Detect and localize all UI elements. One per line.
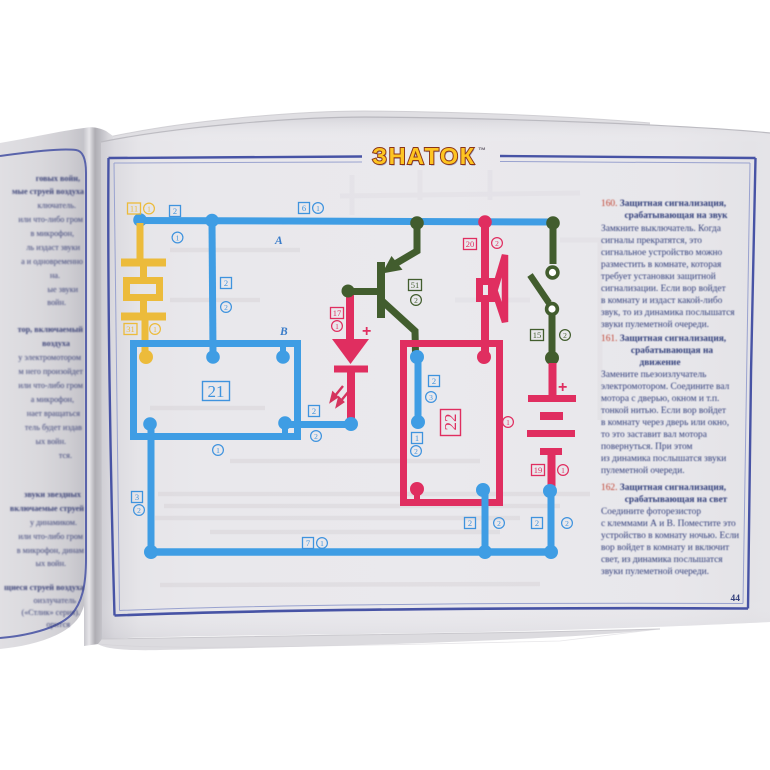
- svg-text:51: 51: [411, 280, 420, 290]
- svg-text:7: 7: [306, 538, 310, 548]
- svg-text:1: 1: [316, 204, 320, 213]
- svg-text:2: 2: [565, 519, 569, 528]
- svg-text:из динамика послышатся звуки: из динамика послышатся звуки: [601, 454, 726, 464]
- svg-text:20: 20: [466, 239, 475, 249]
- svg-text:2: 2: [312, 406, 316, 416]
- svg-text:160. Защитная сигнализация,: 160. Защитная сигнализация,: [601, 199, 726, 209]
- svg-text:1: 1: [506, 418, 510, 427]
- svg-text:на.: на.: [50, 271, 60, 280]
- svg-text:2: 2: [224, 303, 228, 312]
- svg-text:щиеся струей воздуха: щиеся струей воздуха: [4, 583, 84, 592]
- svg-text:у электромотором: у электромотором: [18, 353, 81, 362]
- svg-text:мотора с дверью, окном и т.п.: мотора с дверью, окном и т.п.: [601, 394, 719, 404]
- svg-text:2: 2: [414, 296, 418, 305]
- svg-text:требует установки защитной: требует установки защитной: [601, 271, 716, 282]
- svg-text:или что-либо гром: или что-либо гром: [18, 215, 83, 224]
- svg-text:или что-либо гром: или что-либо гром: [18, 381, 83, 390]
- svg-text:срабатывающая на: срабатывающая на: [631, 345, 713, 356]
- svg-text:воздуха: воздуха: [42, 339, 70, 348]
- svg-text:ЗНАТОК: ЗНАТОК: [372, 143, 476, 169]
- svg-text:или что-либо гром: или что-либо гром: [18, 532, 83, 541]
- svg-text:21: 21: [208, 382, 225, 401]
- svg-text:11: 11: [130, 204, 138, 214]
- svg-text:свет, из динамика послышатся: свет, из динамика послышатся: [601, 555, 723, 565]
- svg-text:ых войн.: ых войн.: [36, 437, 66, 446]
- svg-text:2: 2: [224, 278, 228, 288]
- svg-text:в комнату через дверь или окно: в комнату через дверь или окно,: [601, 418, 729, 428]
- svg-text:электромотором. Соедините вал: электромотором. Соедините вал: [601, 382, 730, 392]
- svg-text:1: 1: [153, 325, 157, 334]
- svg-text:1: 1: [320, 539, 324, 548]
- svg-text:сигнальное устройство можно: сигнальное устройство можно: [601, 247, 723, 258]
- svg-text:B: B: [279, 326, 288, 338]
- svg-text:мые струей воздуха: мые струей воздуха: [12, 187, 84, 196]
- svg-text:звук, то из динамика послышатс: звук, то из динамика послышатся: [601, 308, 735, 318]
- svg-text:войн.: войн.: [47, 298, 66, 307]
- svg-text:тель будет издав: тель будет издав: [25, 423, 82, 432]
- svg-text:17: 17: [333, 308, 342, 318]
- svg-text:1: 1: [216, 446, 220, 455]
- svg-text:тонкой нитью. Если вор войдет: тонкой нитью. Если вор войдет: [601, 405, 726, 416]
- svg-text:оизлучатель: оизлучатель: [34, 596, 77, 605]
- svg-text:то это заставит вал мотора: то это заставит вал мотора: [601, 430, 708, 440]
- svg-text:тся.: тся.: [59, 451, 72, 460]
- svg-text:2: 2: [414, 447, 418, 456]
- svg-text:3: 3: [135, 492, 139, 502]
- svg-text:разместить в комнате, которая: разместить в комнате, которая: [601, 260, 722, 270]
- svg-text:говых войн,: говых войн,: [36, 174, 80, 183]
- svg-text:тор, включаемый: тор, включаемый: [18, 325, 84, 334]
- svg-text:1: 1: [147, 205, 151, 214]
- svg-text:2: 2: [432, 376, 436, 386]
- svg-text:2: 2: [137, 506, 141, 515]
- svg-text:орится: орится: [46, 620, 70, 629]
- svg-text:2: 2: [563, 331, 567, 340]
- svg-text:2: 2: [468, 518, 472, 528]
- svg-text:ключатель.: ключатель.: [38, 201, 77, 210]
- svg-text:ые звуки: ые звуки: [48, 285, 79, 294]
- svg-text:31: 31: [126, 324, 135, 334]
- svg-text:в микрофон, динам: в микрофон, динам: [17, 546, 84, 555]
- svg-text:в комнату и издаст какой-либо: в комнату и издаст какой-либо: [601, 295, 723, 306]
- svg-text:6: 6: [302, 203, 306, 213]
- svg-text:звуки звездных: звуки звездных: [24, 490, 82, 499]
- svg-text:Замените пьезоизлучатель: Замените пьезоизлучатель: [601, 370, 706, 380]
- svg-text:а микрофон,: а микрофон,: [31, 395, 74, 404]
- svg-text:движение: движение: [639, 358, 680, 368]
- svg-text:162. Защитная сигнализация,: 162. Защитная сигнализация,: [601, 483, 726, 493]
- svg-text:ых войн.: ых войн.: [36, 559, 66, 568]
- svg-text:звуки пулеметной очереди.: звуки пулеметной очереди.: [601, 566, 709, 577]
- svg-text:повернуться. При этом: повернуться. При этом: [601, 442, 692, 452]
- svg-text:у динамиком.: у динамиком.: [30, 518, 77, 527]
- svg-text:(«Стлик» серия).: («Стлик» серия).: [21, 608, 80, 617]
- svg-text:1: 1: [561, 466, 565, 475]
- svg-text:44: 44: [731, 594, 741, 604]
- svg-text:сигналы прекратятся, это: сигналы прекратятся, это: [601, 236, 702, 246]
- svg-text:2: 2: [535, 518, 539, 528]
- svg-text:звуки пулеметной очереди.: звуки пулеметной очереди.: [601, 319, 709, 330]
- svg-text:A: A: [274, 235, 283, 247]
- svg-text:вор войдет в комнату и включит: вор войдет в комнату и включит: [601, 542, 729, 553]
- svg-text:2: 2: [495, 239, 499, 248]
- svg-text:а и одновременно: а и одновременно: [21, 257, 83, 266]
- svg-text:2: 2: [314, 432, 318, 441]
- svg-text:2: 2: [497, 519, 501, 528]
- svg-text:Замкните выключатель. Когда: Замкните выключатель. Когда: [601, 224, 722, 234]
- svg-text:срабатывающая на звук: срабатывающая на звук: [624, 210, 728, 221]
- svg-text:+: +: [362, 323, 371, 340]
- svg-text:1: 1: [176, 234, 180, 243]
- svg-text:15: 15: [533, 330, 542, 340]
- svg-text:нает вращаться: нает вращаться: [27, 409, 81, 418]
- svg-text:3: 3: [429, 393, 433, 402]
- svg-text:19: 19: [534, 465, 543, 475]
- svg-text:2: 2: [173, 206, 177, 216]
- svg-text:Соедините фоторезистор: Соедините фоторезистор: [601, 506, 701, 517]
- svg-text:ль издаст звуки: ль издаст звуки: [26, 243, 80, 252]
- svg-text:в микрофон,: в микрофон,: [31, 229, 74, 238]
- svg-text:устройство в комнату ночью. Ес: устройство в комнату ночью. Если: [601, 530, 739, 541]
- svg-text:+: +: [558, 379, 567, 396]
- svg-text:сигнализации. Если вор войдет: сигнализации. Если вор войдет: [601, 283, 726, 294]
- svg-text:с клеммами А и В. Поместите эт: с клеммами А и В. Поместите это: [601, 519, 736, 529]
- svg-text:22: 22: [441, 414, 460, 431]
- svg-text:1: 1: [415, 433, 419, 443]
- svg-text:пулеметной очереди.: пулеметной очереди.: [601, 465, 685, 476]
- svg-text:включаемые струей: включаемые струей: [10, 504, 84, 513]
- svg-text:срабатывающая на свет: срабатывающая на свет: [625, 494, 728, 505]
- svg-text:м него произойдет: м него произойдет: [18, 367, 83, 376]
- svg-text:161. Защитная сигнализация,: 161. Защитная сигнализация,: [601, 334, 726, 344]
- svg-text:1: 1: [335, 322, 339, 331]
- svg-text:™: ™: [478, 146, 486, 155]
